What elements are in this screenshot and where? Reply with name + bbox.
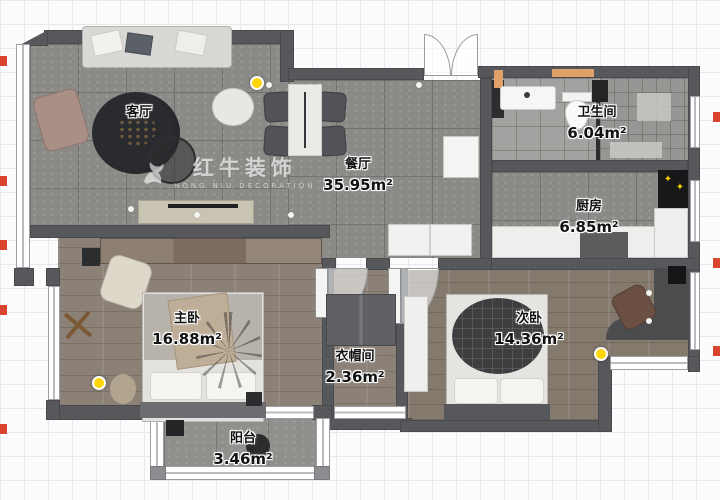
second-bottom-window	[610, 356, 688, 370]
hall-cabinet-tall	[443, 136, 479, 178]
entry-door-arc-right	[451, 34, 478, 76]
wall-cloak-bottom	[322, 418, 412, 430]
kitchen-island-dark	[580, 232, 628, 258]
master-ceiling-light	[196, 312, 262, 390]
ruler-tick-right-2	[713, 258, 720, 268]
side-table-round	[148, 136, 196, 184]
light-marker-entry	[250, 76, 264, 90]
second-bed-rug	[452, 298, 544, 374]
downlight-3	[266, 82, 272, 88]
burner-flame-icon-2: ✦	[674, 182, 686, 194]
cloak-wardrobe	[326, 294, 396, 346]
wall-top-dining	[288, 68, 424, 80]
desk-knob-2	[646, 318, 652, 324]
burner-flame-icon-1: ✦	[662, 174, 674, 186]
shower-mat	[637, 93, 671, 121]
wall-master-left-bottom-block	[46, 400, 60, 420]
second-pillow-1	[454, 378, 498, 404]
bathroom-top-threshold	[552, 69, 594, 77]
bath-mat	[610, 142, 662, 158]
light-marker-master	[92, 376, 106, 390]
bathroom-cabinet-dark	[592, 80, 608, 102]
master-side-table	[246, 392, 262, 406]
entry-door-arc-left	[424, 34, 451, 76]
wall-dining-bathroom	[480, 78, 492, 270]
desk-knob-1	[646, 290, 652, 296]
sofa-pillow-2	[125, 32, 154, 55]
balcony-corner-right	[314, 466, 330, 480]
downlight-4	[416, 82, 422, 88]
tv-screen	[168, 204, 238, 208]
living-left-window	[16, 44, 30, 268]
bathroom-right-window	[690, 96, 700, 148]
floor-drain-icon	[246, 434, 270, 458]
master-column	[82, 248, 100, 266]
kitchen-right-window	[690, 180, 700, 242]
downlight-1	[128, 206, 134, 212]
balcony-washer	[166, 420, 184, 436]
kitchen-counter-bottom	[492, 226, 662, 258]
balcony-floor	[164, 418, 316, 468]
coffee-table-decor	[118, 112, 156, 146]
ceiling-fan-icon	[60, 308, 96, 342]
downlight-2	[288, 212, 294, 218]
wall-living-master	[30, 225, 330, 238]
second-right-window	[690, 272, 700, 350]
cloak-south-window	[334, 406, 406, 419]
wall-master-left-top-block	[46, 268, 60, 286]
wall-corridor-bottom-3	[438, 258, 492, 270]
wall-left-corner-block	[14, 268, 34, 286]
wall-corridor-bottom-2	[366, 258, 390, 270]
ruler-tick-right-1	[713, 112, 720, 122]
master-rug-round	[110, 374, 136, 404]
floor-plan-canvas: ✦ ✦	[0, 0, 720, 500]
light-marker-second	[594, 347, 608, 361]
ruler-tick-left-4	[0, 305, 7, 315]
desk-tv	[668, 266, 686, 284]
balcony-corner-left	[150, 466, 166, 480]
master-left-window	[48, 286, 60, 400]
vanity-faucet	[524, 92, 530, 98]
shoe-cabinet	[388, 224, 472, 256]
ruler-tick-left-2	[0, 176, 7, 186]
master-pillow-1	[150, 372, 202, 400]
ruler-tick-left-3	[0, 240, 7, 250]
second-headboard	[444, 404, 550, 420]
ruler-tick-left-5	[0, 424, 7, 434]
second-closet	[404, 296, 428, 392]
second-pillow-2	[500, 378, 544, 404]
downlight-5	[194, 212, 200, 218]
bathroom-vanity	[500, 86, 556, 110]
balcony-bottom-window	[150, 466, 330, 480]
pouf-oval	[212, 88, 254, 126]
kitchen-counter-right	[654, 208, 688, 258]
wall-second-bottom	[400, 420, 612, 432]
ruler-tick-right-3	[713, 346, 720, 356]
dining-pendant-light	[304, 92, 306, 148]
ruler-tick-left-1	[0, 56, 7, 66]
